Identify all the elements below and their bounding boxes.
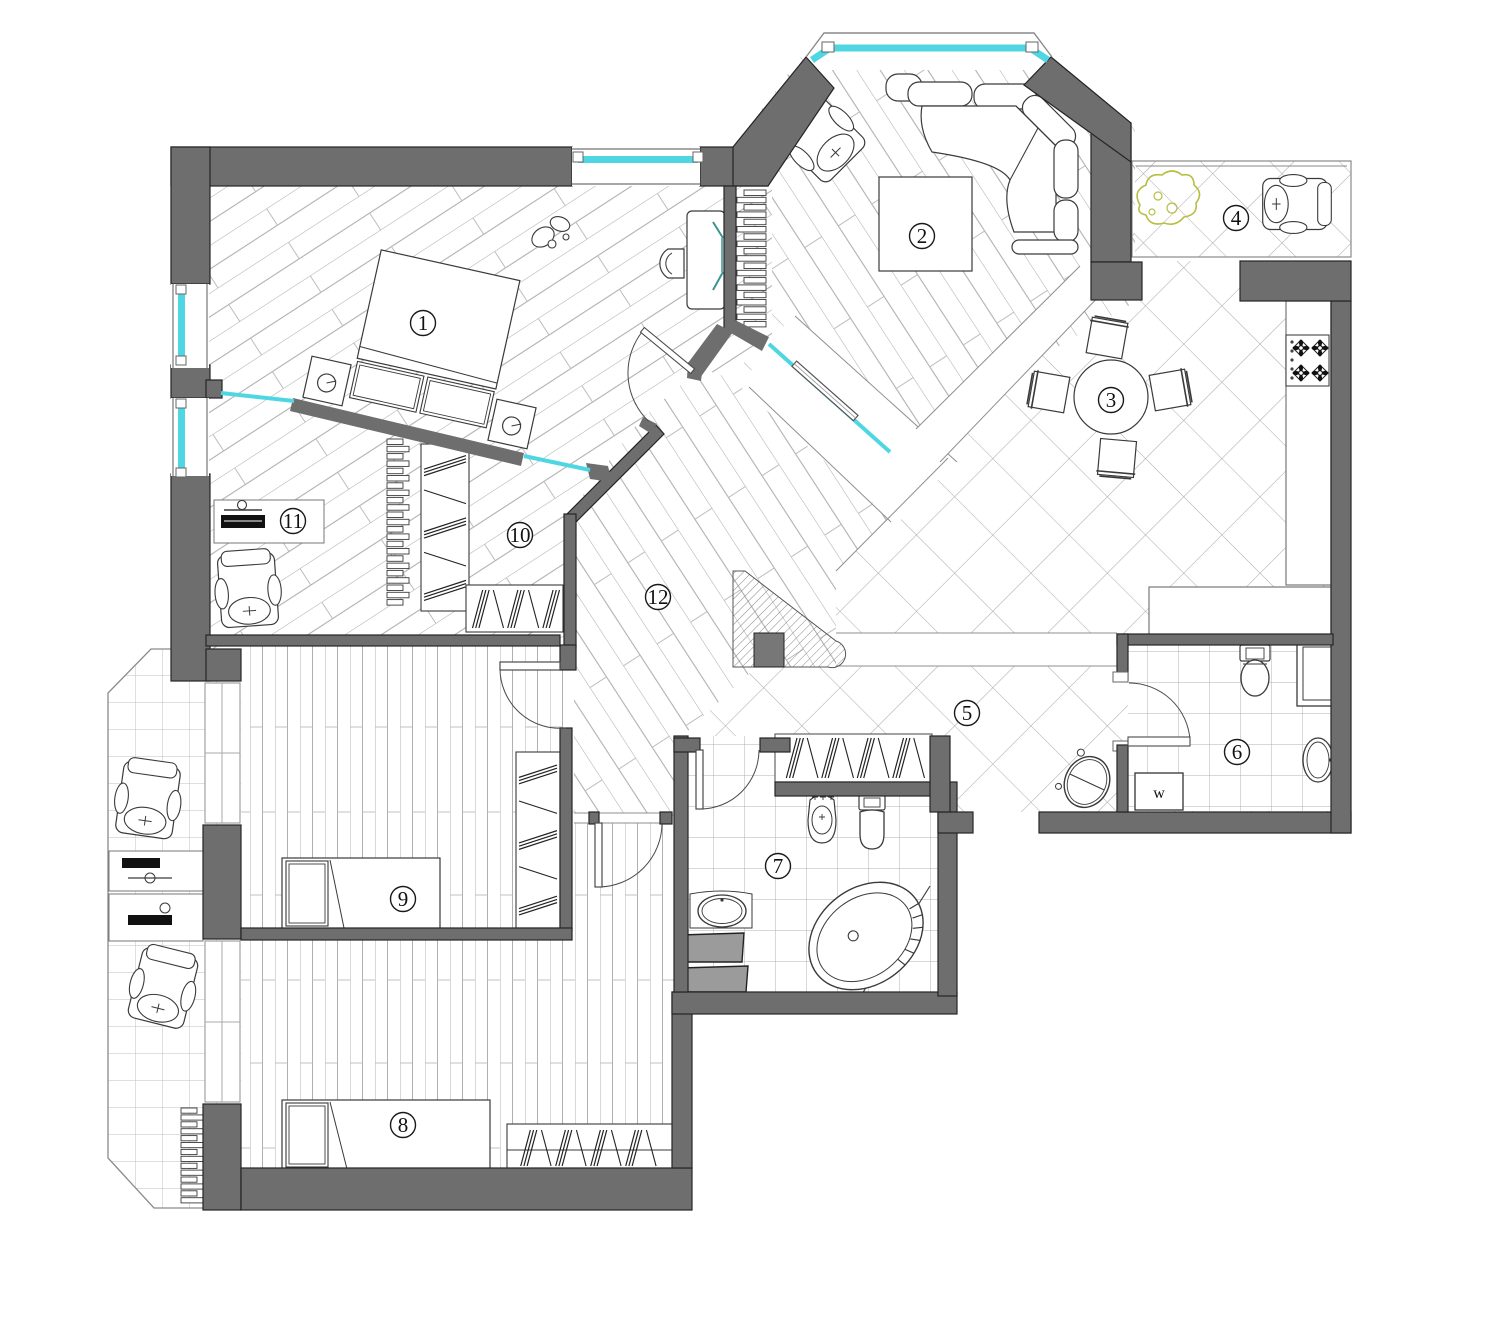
svg-text:1: 1 <box>418 311 429 335</box>
svg-text:7: 7 <box>773 854 784 878</box>
svg-text:3: 3 <box>1106 388 1117 412</box>
svg-text:w: w <box>1153 785 1165 802</box>
svg-text:11: 11 <box>283 509 303 533</box>
svg-text:4: 4 <box>1231 206 1242 230</box>
svg-text:5: 5 <box>962 701 973 725</box>
svg-text:10: 10 <box>510 523 531 547</box>
svg-text:6: 6 <box>1232 740 1243 764</box>
svg-text:9: 9 <box>398 887 409 911</box>
svg-text:12: 12 <box>648 585 669 609</box>
svg-text:8: 8 <box>398 1113 409 1137</box>
svg-text:2: 2 <box>917 224 928 248</box>
